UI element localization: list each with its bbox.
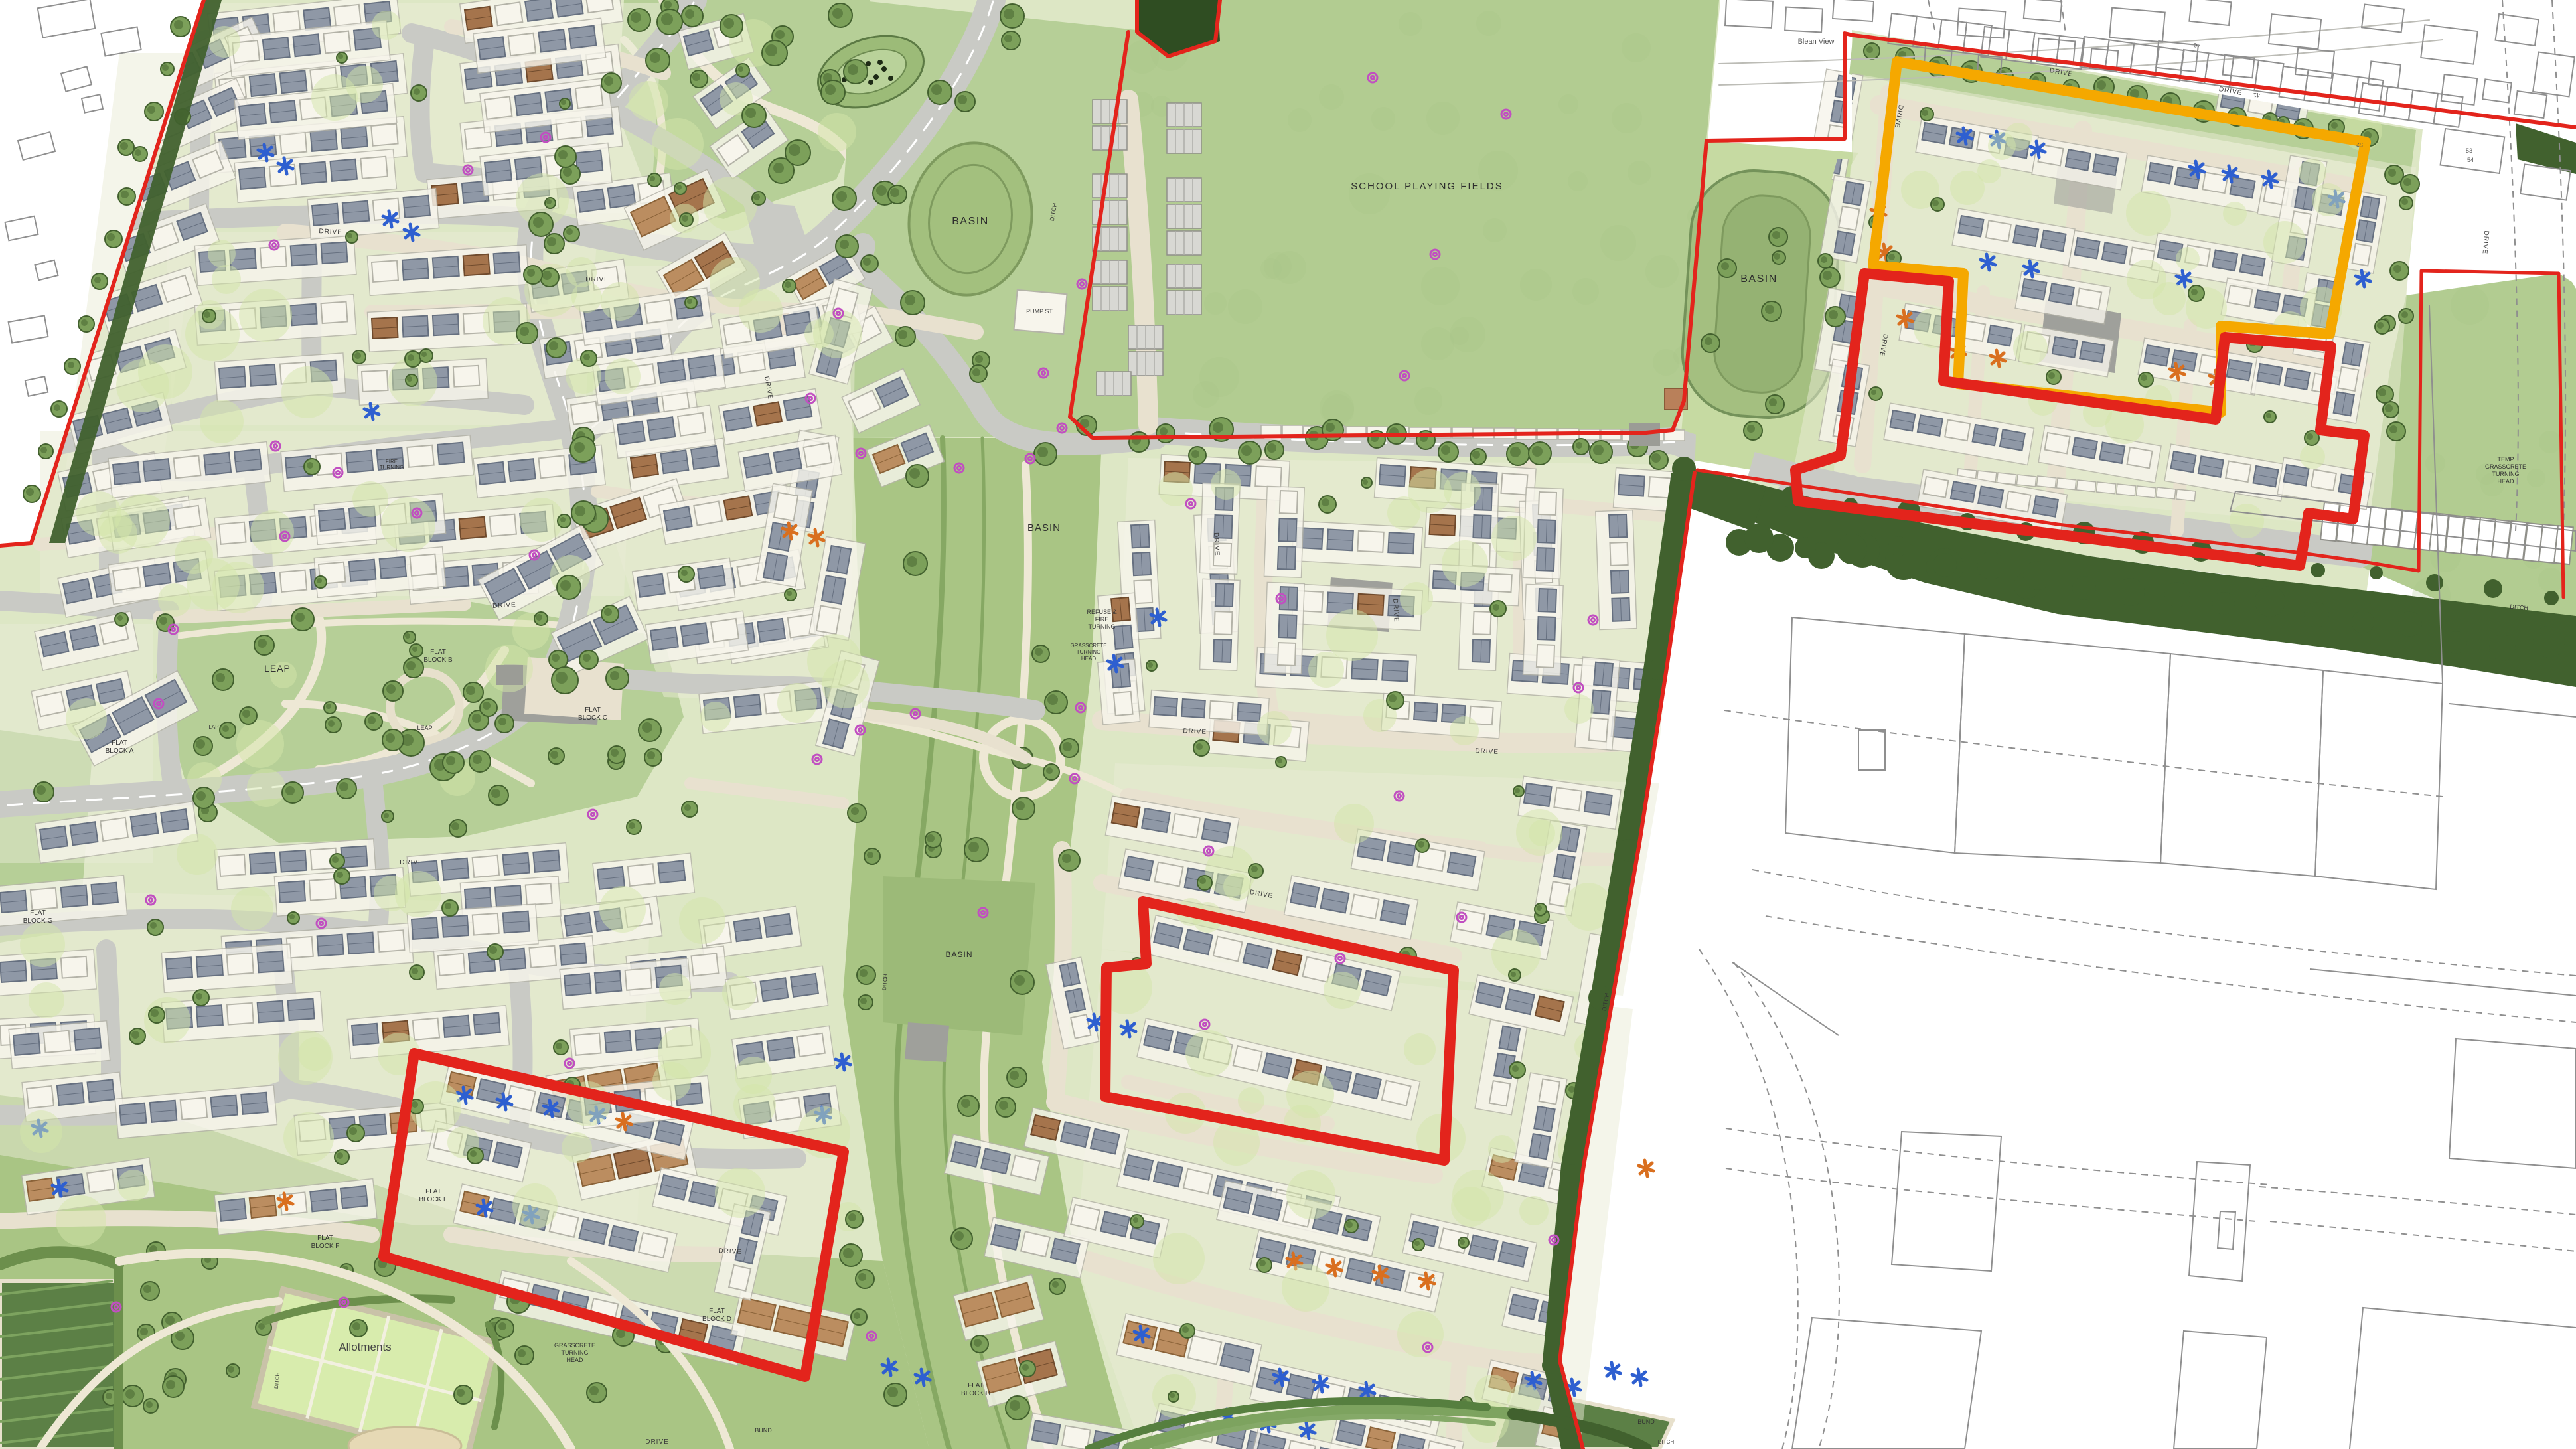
svg-text:GRASSCRETE: GRASSCRETE: [2485, 463, 2526, 470]
svg-text:FIRE: FIRE: [386, 459, 398, 465]
svg-text:BASIN: BASIN: [945, 950, 972, 959]
svg-text:FLAT: FLAT: [968, 1382, 984, 1389]
svg-text:HEAD: HEAD: [2497, 478, 2514, 485]
svg-text:BLOCK A: BLOCK A: [106, 747, 134, 755]
svg-text:DRIVE: DRIVE: [492, 601, 516, 610]
svg-text:BASIN: BASIN: [952, 216, 989, 227]
svg-text:DRIVE: DRIVE: [1183, 727, 1207, 736]
svg-text:FLAT: FLAT: [430, 648, 446, 656]
svg-text:41: 41: [2253, 92, 2260, 98]
svg-text:FLAT: FLAT: [425, 1188, 441, 1195]
svg-text:HEAD: HEAD: [1081, 656, 1096, 662]
svg-text:DRIVE: DRIVE: [319, 228, 342, 236]
svg-text:DRIVE: DRIVE: [1391, 599, 1400, 623]
svg-text:DRIVE: DRIVE: [645, 1438, 669, 1446]
svg-text:TURNING: TURNING: [1089, 623, 1116, 630]
svg-text:FLAT: FLAT: [709, 1308, 725, 1315]
svg-text:LAP: LAP: [208, 724, 218, 730]
svg-text:BLOCK D: BLOCK D: [702, 1316, 731, 1323]
svg-text:FIRE: FIRE: [1095, 616, 1109, 623]
svg-text:FLAT: FLAT: [30, 909, 46, 917]
svg-text:GRASSCRETE: GRASSCRETE: [1070, 643, 1106, 648]
svg-text:54: 54: [2467, 157, 2474, 163]
svg-text:DRIVE: DRIVE: [585, 276, 609, 283]
svg-text:BLOCK B: BLOCK B: [423, 656, 453, 664]
svg-text:BLOCK E: BLOCK E: [419, 1196, 448, 1203]
svg-text:TURNING: TURNING: [2492, 471, 2520, 477]
svg-text:BLOCK F: BLOCK F: [311, 1243, 340, 1250]
svg-text:DRIVE: DRIVE: [1212, 532, 1221, 556]
svg-text:BLOCK C: BLOCK C: [578, 714, 607, 722]
svg-text:TURNING: TURNING: [1077, 649, 1100, 655]
svg-text:TURNING: TURNING: [562, 1349, 589, 1356]
svg-text:BLOCK H: BLOCK H: [961, 1390, 990, 1397]
svg-text:52: 52: [2356, 141, 2363, 148]
svg-text:53: 53: [2466, 147, 2472, 154]
svg-text:FLAT: FLAT: [112, 739, 127, 747]
svg-text:TEMP: TEMP: [2497, 456, 2514, 463]
svg-text:SCHOOL PLAYING FIELDS: SCHOOL PLAYING FIELDS: [1351, 181, 1503, 192]
svg-text:DRIVE: DRIVE: [718, 1247, 742, 1256]
svg-text:DITCH: DITCH: [1658, 1439, 1675, 1445]
svg-text:Blean View: Blean View: [1798, 38, 1835, 46]
svg-text:FLAT: FLAT: [317, 1235, 333, 1242]
svg-text:BUND: BUND: [755, 1427, 772, 1434]
svg-text:DRIVE: DRIVE: [1475, 747, 1499, 756]
svg-text:40: 40: [2194, 42, 2200, 48]
svg-text:TURNING: TURNING: [380, 465, 404, 471]
svg-text:DRIVE: DRIVE: [400, 859, 423, 866]
svg-text:REFUSE &: REFUSE &: [1087, 609, 1116, 615]
svg-text:Allotments: Allotments: [339, 1341, 391, 1353]
svg-text:BASIN: BASIN: [1027, 522, 1061, 534]
svg-text:BASIN: BASIN: [1740, 273, 1778, 285]
svg-text:PUMP ST: PUMP ST: [1026, 308, 1053, 315]
svg-text:BUND: BUND: [1637, 1418, 1655, 1425]
svg-text:LEAP: LEAP: [264, 663, 291, 674]
svg-text:LEAP: LEAP: [417, 725, 432, 731]
svg-text:GRASSCRETE: GRASSCRETE: [554, 1342, 595, 1349]
svg-text:FLAT: FLAT: [585, 706, 601, 714]
svg-text:HEAD: HEAD: [566, 1357, 583, 1363]
svg-text:BLOCK G: BLOCK G: [23, 917, 53, 925]
